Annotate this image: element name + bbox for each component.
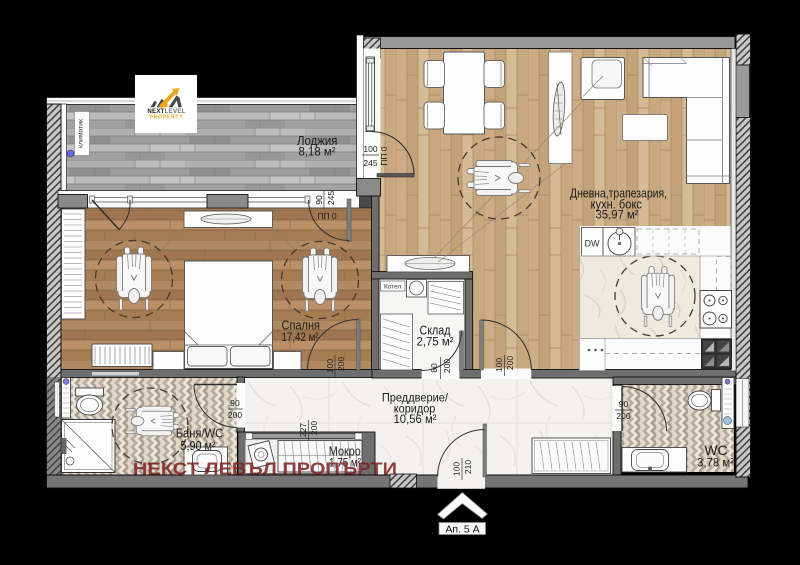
svg-text:100: 100 [325,359,335,373]
svg-text:3,78 м²: 3,78 м² [697,456,734,470]
svg-text:200: 200 [336,357,346,371]
svg-text:Ап. 5 А: Ап. 5 А [445,523,479,535]
svg-text:Котел: Котел [384,284,402,291]
svg-text:ПП 0: ПП 0 [317,211,337,221]
svg-text:245: 245 [363,158,377,168]
svg-text:90: 90 [619,399,629,409]
svg-text:ПП 0: ПП 0 [379,146,389,166]
svg-text:90: 90 [314,195,324,205]
svg-text:200: 200 [309,421,319,435]
svg-text:DW: DW [585,239,600,249]
svg-text:5,90 м²: 5,90 м² [181,439,216,453]
svg-text:90: 90 [230,398,240,408]
svg-text:НЕКСТ ЛЕВЪЛ ПРОПЪРТИ: НЕКСТ ЛЕВЪЛ ПРОПЪРТИ [133,459,397,479]
svg-text:200: 200 [228,410,242,420]
svg-text:35,97 м²: 35,97 м² [596,208,639,222]
svg-text:200: 200 [616,411,630,421]
svg-text:100: 100 [363,144,377,154]
svg-text:227: 227 [298,423,308,437]
svg-text:100: 100 [494,358,504,372]
svg-text:200: 200 [442,359,452,373]
svg-text:17,42 м²: 17,42 м² [282,330,319,344]
svg-text:80: 80 [429,363,439,373]
svg-text:100: 100 [452,462,462,476]
svg-text:2,75 м²: 2,75 м² [417,335,454,349]
svg-text:210: 210 [463,460,473,474]
svg-text:климатик: климатик [78,119,85,148]
svg-text:8,18 м²: 8,18 м² [299,145,336,159]
svg-text:PROPERTY: PROPERTY [150,115,184,121]
svg-text:200: 200 [505,356,515,370]
svg-text:245: 245 [326,191,336,205]
svg-text:10,56 м²: 10,56 м² [394,412,437,426]
